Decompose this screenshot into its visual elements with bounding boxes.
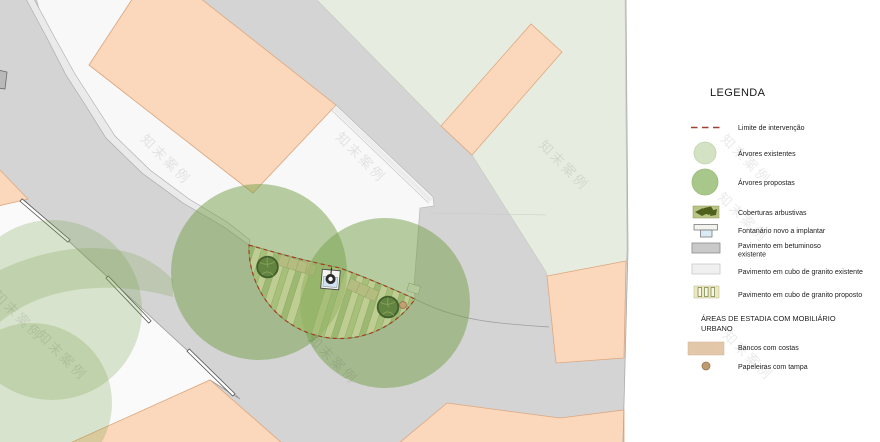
svg-text:Bancos com costas: Bancos com costas [738, 345, 799, 352]
svg-text:ÁREAS DE ESTADIA COM MOBILIÁRI: ÁREAS DE ESTADIA COM MOBILIÁRIO [701, 314, 836, 323]
svg-text:Pavimento em cubo de granito p: Pavimento em cubo de granito proposto [738, 292, 862, 299]
svg-text:Coberturas arbustivas: Coberturas arbustivas [738, 210, 807, 217]
svg-text:Árvores existentes: Árvores existentes [738, 149, 796, 158]
svg-text:LEGENDA: LEGENDA [710, 87, 766, 99]
svg-text:Pavimento em betuminoso: Pavimento em betuminoso [738, 243, 821, 250]
svg-text:Árvores propostas: Árvores propostas [738, 178, 795, 187]
svg-text:Pavimento em cubo de granito e: Pavimento em cubo de granito existente [738, 269, 863, 276]
svg-text:existente: existente [738, 252, 766, 259]
svg-text:Papeleiras com tampa: Papeleiras com tampa [738, 364, 808, 371]
svg-text:URBANO: URBANO [701, 324, 733, 333]
svg-text:Fontanário novo a implantar: Fontanário novo a implantar [738, 228, 826, 235]
svg-text:Limite de intervenção: Limite de intervenção [738, 125, 805, 132]
